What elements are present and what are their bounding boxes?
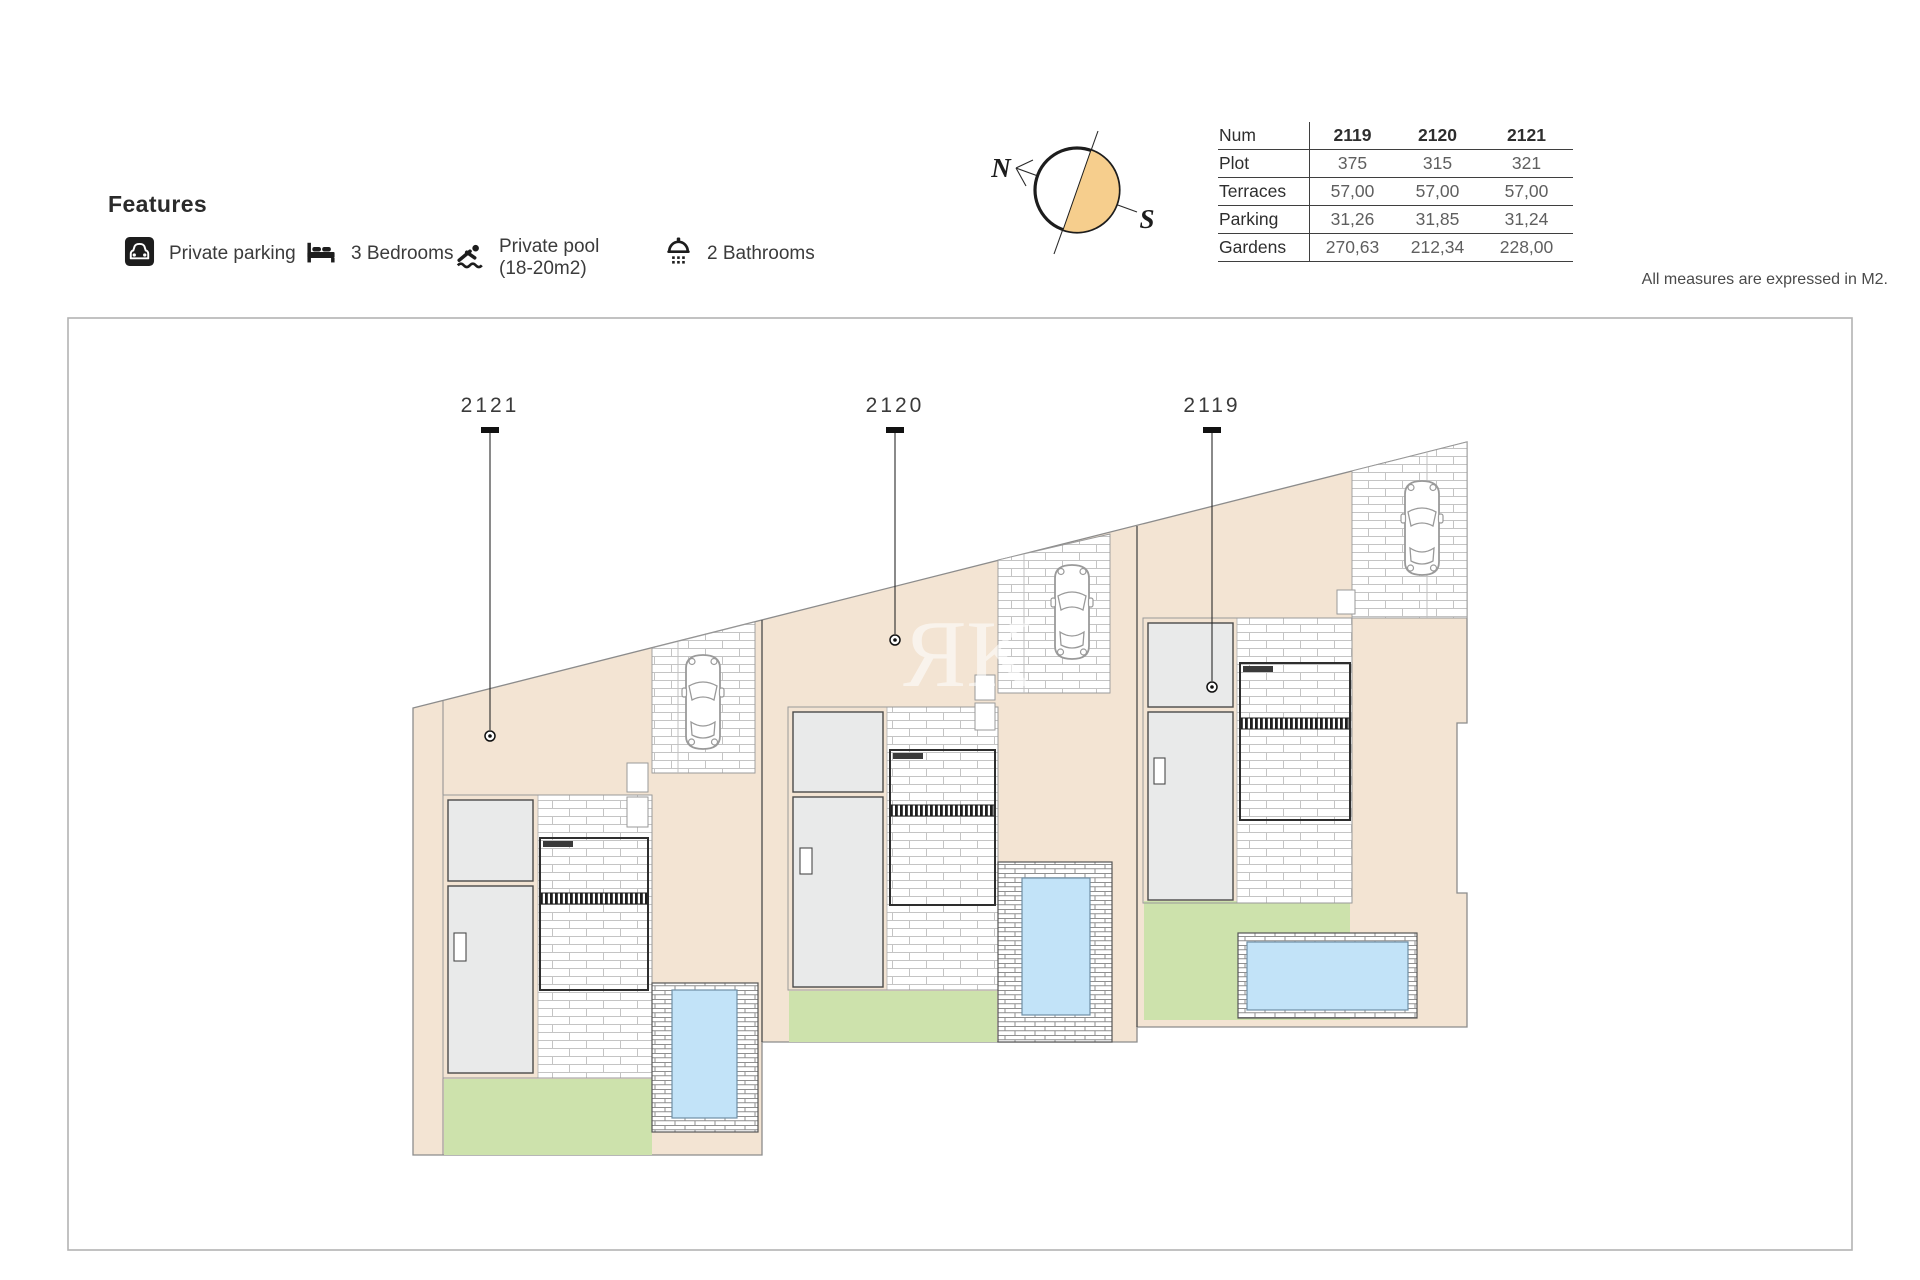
house-2121	[448, 886, 533, 1073]
car-icon-2119	[1401, 481, 1443, 575]
utility-box-2120-b	[975, 703, 995, 730]
site-plan-sheet: Features Private parking	[0, 0, 1920, 1280]
compass-north-label: N	[990, 153, 1012, 183]
utility-box-2121-a	[627, 763, 648, 792]
terrace-step-2120	[893, 753, 923, 759]
house-2119	[1148, 712, 1233, 900]
door-2121	[454, 933, 466, 961]
watermark: ЯK	[903, 601, 1035, 707]
pergola-2121	[541, 893, 647, 904]
compass: N S	[990, 131, 1154, 254]
utility-box-2119	[1337, 590, 1355, 614]
door-2119	[1154, 758, 1165, 784]
terrace-step-2121	[543, 841, 573, 847]
pool-2119	[1247, 942, 1408, 1010]
garden-2120	[789, 991, 997, 1042]
house-2120	[793, 797, 883, 987]
terrace-2119	[1237, 618, 1352, 903]
pergola-2119	[1241, 718, 1349, 729]
garden-2121	[444, 1079, 652, 1155]
site-plan-svg: N S	[0, 0, 1920, 1280]
compass-south-label: S	[1139, 204, 1154, 234]
pool-2121	[672, 990, 737, 1118]
garage-2121	[448, 800, 533, 881]
garage-2120	[793, 712, 883, 792]
pool-2120	[1022, 878, 1090, 1015]
garage-2119	[1148, 623, 1233, 707]
utility-box-2121-b	[627, 797, 648, 827]
pergola-2120	[891, 805, 994, 816]
car-icon-2120	[1051, 565, 1093, 659]
door-2120	[800, 848, 812, 874]
plot-label-2121: 2121	[461, 394, 520, 417]
terrace-step-2119	[1243, 666, 1273, 672]
plot-label-2120: 2120	[866, 394, 925, 417]
plot-label-2119: 2119	[1183, 394, 1240, 417]
car-icon-2121	[682, 655, 724, 749]
